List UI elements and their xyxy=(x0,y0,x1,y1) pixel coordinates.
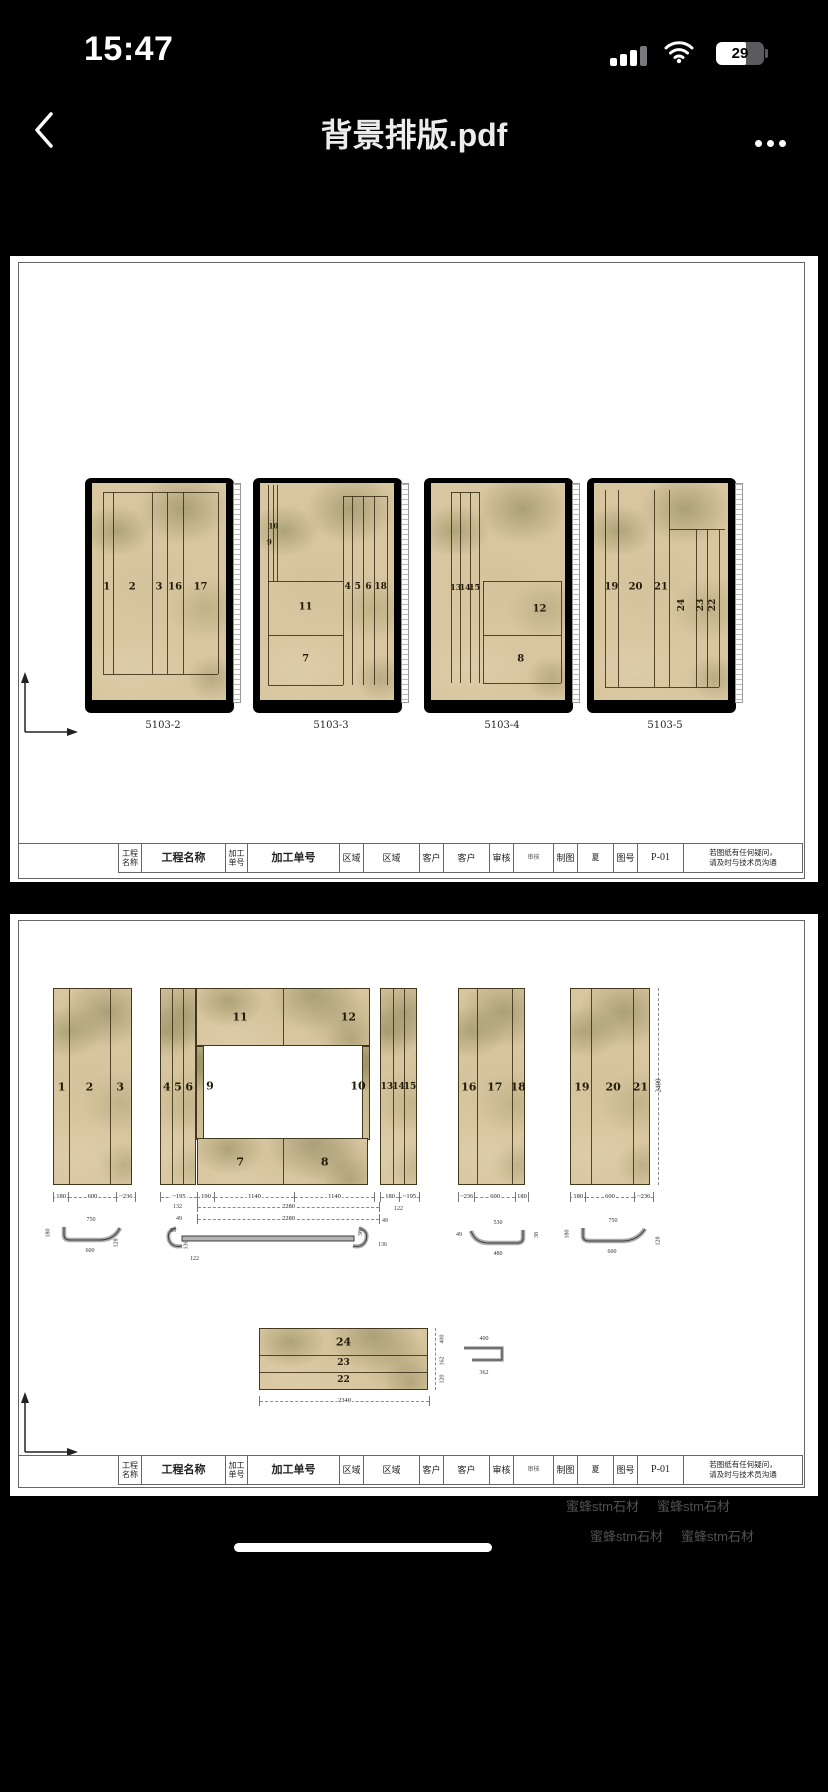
slab-ruler xyxy=(572,483,580,703)
dims-gC: 180 ~195 xyxy=(380,1192,417,1202)
watermark: 蜜蜂stm石材 蜜蜂stm石材 xyxy=(566,1496,730,1515)
tb-label: 工程名称 xyxy=(119,1456,141,1484)
edge-profile-small xyxy=(458,1344,510,1366)
slab-image: 19 20 21 24 23 22 xyxy=(594,483,728,700)
tb-value: 夏 xyxy=(577,1456,613,1484)
slab-ruler xyxy=(401,483,409,703)
piece-label: 21 xyxy=(633,1080,648,1093)
strips-131415: 13 14 15 xyxy=(380,988,417,1185)
dims-gE: 180 600 ~236 xyxy=(570,1192,650,1202)
title-block: 工程名称 工程名称 加工单号 加工单号 区域 区域 客户 客户 审核 审核 制图… xyxy=(118,843,803,873)
piece-label: 19 xyxy=(604,582,618,593)
tb-label: 加工单号 xyxy=(225,844,247,872)
phone-screen: 15:47 29 背景排版.pdf 1 xyxy=(0,0,828,1792)
back-icon[interactable] xyxy=(30,110,56,150)
dim: 132 xyxy=(173,1204,182,1210)
piece-label: 12 xyxy=(533,603,547,614)
slab-caption: 5103-4 xyxy=(424,720,580,731)
piece-label: 9 xyxy=(267,537,272,546)
piece-label: 7 xyxy=(236,1155,244,1168)
height-dim: 2400 xyxy=(656,1079,663,1093)
panel-group-123: 1 2 3 xyxy=(53,988,132,1185)
slab-image: 10 9 11 7 4 5 6 18 xyxy=(260,483,394,700)
piece-label: 24 xyxy=(336,1335,351,1348)
home-indicator[interactable] xyxy=(234,1543,492,1552)
tb-label: 图号 xyxy=(613,844,637,872)
tb-value: 工程名称 xyxy=(141,1456,225,1484)
profile-dim: 49 xyxy=(456,1232,462,1238)
strip-10 xyxy=(362,1046,370,1140)
piece-label: 1 xyxy=(103,582,110,593)
profile-dim: 180 xyxy=(46,1229,52,1238)
piece-label: 12 xyxy=(341,1011,356,1024)
piece-label: 10 xyxy=(269,522,279,531)
edge-profile xyxy=(575,1225,651,1247)
piece-label: 18 xyxy=(374,582,387,592)
document-title: 背景排版.pdf xyxy=(120,110,708,156)
slab-caption: 5103-3 xyxy=(253,720,409,731)
battery-icon: 29 xyxy=(716,42,764,65)
dim: 400 xyxy=(440,1335,446,1344)
profile-dim: 362 xyxy=(458,1370,510,1376)
tb-value: 区域 xyxy=(363,1456,419,1484)
panel-group-161718: 16 17 18 xyxy=(458,988,525,1185)
edge-profile xyxy=(465,1227,531,1249)
piece-label: 23 xyxy=(337,1358,350,1368)
piece-label: 11 xyxy=(232,1011,247,1024)
piece-label: 19 xyxy=(574,1080,589,1093)
profile-dim: 600 xyxy=(590,1249,634,1255)
piece-label: 22 xyxy=(708,598,718,611)
tb-value: 审核 xyxy=(513,1456,553,1484)
profile-dim: 750 xyxy=(56,1217,126,1223)
piece-label: 18 xyxy=(510,1080,525,1093)
piece-label: 23 xyxy=(696,598,706,611)
profile-dim: 480 xyxy=(480,1251,516,1257)
piece-label: 5 xyxy=(355,582,361,592)
tb-label: 工程名称 xyxy=(119,844,141,872)
tb-label: 加工单号 xyxy=(225,1456,247,1484)
tb-label: 制图 xyxy=(553,1456,577,1484)
tb-value: 加工单号 xyxy=(247,1456,339,1484)
slab-image: 1 2 3 16 17 xyxy=(92,483,226,700)
strip-9 xyxy=(196,1046,204,1140)
slab-5103-3: 10 9 11 7 4 5 6 18 xyxy=(253,478,409,713)
piece-label: 24 xyxy=(677,598,687,611)
watermark: 蜜蜂stm石材 蜜蜂stm石材 xyxy=(590,1526,754,1545)
dims-2280b: 2280 xyxy=(197,1214,378,1224)
tb-value: 审核 xyxy=(513,844,553,872)
tb-label: 审核 xyxy=(489,1456,513,1484)
piece-label: 11 xyxy=(299,601,313,612)
edge-profile-long xyxy=(160,1224,375,1254)
profile-dim: 750 xyxy=(575,1218,651,1224)
piece-label: 22 xyxy=(337,1375,350,1385)
bottom-band-7-8: 7 8 xyxy=(197,1138,368,1185)
piece-label: 17 xyxy=(487,1080,502,1093)
cellular-signal-icon xyxy=(610,44,652,66)
piece-label: 9 xyxy=(206,1080,214,1093)
piece-label: 2 xyxy=(86,1080,94,1093)
piece-label: 20 xyxy=(629,582,643,593)
piece-label: 4 xyxy=(163,1080,171,1093)
slab-5103-5: 19 20 21 24 23 22 xyxy=(587,478,743,713)
profile-dim: 38 xyxy=(358,1230,364,1236)
wifi-icon xyxy=(664,40,694,64)
dim: 162 xyxy=(440,1357,446,1366)
top-band-11-12: 11 12 xyxy=(196,988,370,1046)
tb-label: 客户 xyxy=(419,1456,443,1484)
tb-value: 夏 xyxy=(577,844,613,872)
piece-label: 7 xyxy=(302,653,309,664)
profile-dim: 400 xyxy=(458,1336,510,1342)
profile-dim: 49 xyxy=(382,1218,388,1224)
slab-caption: 5103-5 xyxy=(587,720,743,731)
tb-label: 审核 xyxy=(489,844,513,872)
piece-label: 15 xyxy=(404,1082,417,1092)
profile-dim: 38 xyxy=(534,1232,540,1238)
battery-percent: 29 xyxy=(716,42,764,65)
dim: 122 xyxy=(394,1206,403,1212)
dims-gA: 180 600 ~236 xyxy=(53,1192,132,1202)
piece-label: 15 xyxy=(469,582,480,592)
piece-label: 6 xyxy=(365,582,371,592)
piece-label: 5 xyxy=(174,1080,182,1093)
slab-caption: 5103-2 xyxy=(85,720,241,731)
dim: 49 xyxy=(176,1216,182,1222)
piece-label: 3 xyxy=(156,582,163,593)
axis-origin-icon xyxy=(18,670,82,742)
profile-dim: 180 xyxy=(565,1230,571,1239)
pdf-page-2[interactable]: 1 2 3 4 5 6 11 12 9 10 7 8 13 14 xyxy=(10,914,818,1496)
tb-value: 客户 xyxy=(443,844,489,872)
tb-label: 客户 xyxy=(419,844,443,872)
piece-label: 4 xyxy=(345,582,351,592)
tb-label: 区域 xyxy=(339,1456,363,1484)
piece-label: 1 xyxy=(58,1080,66,1093)
tb-value: 区域 xyxy=(363,844,419,872)
piece-label: 3 xyxy=(116,1080,124,1093)
profile-dim: 128 xyxy=(114,1239,120,1248)
dims-2280a: 2280 xyxy=(197,1202,378,1212)
tb-label: 区域 xyxy=(339,844,363,872)
tb-drawing-no: P-01 xyxy=(637,1456,683,1484)
more-icon[interactable] xyxy=(755,140,786,147)
slab-5103-4: 13 14 15 12 8 xyxy=(424,478,580,713)
dim: 120 xyxy=(440,1375,446,1384)
status-time: 15:47 xyxy=(84,30,173,69)
dims-gD: ~236 600 180 xyxy=(458,1192,525,1202)
tb-value: 客户 xyxy=(443,1456,489,1484)
slab-ruler xyxy=(233,483,241,703)
pdf-page-1[interactable]: 1 2 3 16 17 10 9 11 7 xyxy=(10,256,818,882)
profile-dim: 136 xyxy=(184,1241,190,1250)
title-block: 工程名称 工程名称 加工单号 加工单号 区域 区域 客户 客户 审核 审核 制图… xyxy=(118,1455,803,1485)
profile-dim: 122 xyxy=(190,1256,199,1262)
profile-dim: 530 xyxy=(465,1220,531,1226)
tb-label: 制图 xyxy=(553,844,577,872)
dims-gB: ~195 190 1140 1140 xyxy=(160,1192,370,1202)
piece-label: 21 xyxy=(654,582,668,593)
tb-label: 图号 xyxy=(613,1456,637,1484)
profile-dim: 128 xyxy=(656,1237,662,1246)
piece-label: 16 xyxy=(168,582,182,593)
dims-skirting: 2340 xyxy=(259,1396,428,1406)
piece-label: 17 xyxy=(194,582,208,593)
piece-label: 2 xyxy=(129,582,136,593)
strips-456: 4 5 6 xyxy=(160,988,196,1185)
profile-dim: 136 xyxy=(378,1242,387,1248)
tb-value: 加工单号 xyxy=(247,844,339,872)
tb-value: 工程名称 xyxy=(141,844,225,872)
piece-label: 20 xyxy=(605,1080,620,1093)
piece-label: 8 xyxy=(321,1155,329,1168)
tb-note: 若图纸有任何疑问， 请及时与技术员沟通 xyxy=(683,844,802,872)
tb-drawing-no: P-01 xyxy=(637,844,683,872)
profile-dim: 600 xyxy=(70,1248,110,1254)
skirting-piece: 24 23 22 xyxy=(259,1328,428,1390)
slab-image: 13 14 15 12 8 xyxy=(431,483,565,700)
slab-ruler xyxy=(735,483,743,703)
piece-label: 10 xyxy=(350,1080,365,1093)
piece-label: 8 xyxy=(517,653,524,664)
piece-label: 16 xyxy=(461,1080,476,1093)
panel-group-192021: 19 20 21 xyxy=(570,988,650,1185)
tb-note: 若图纸有任何疑问， 请及时与技术员沟通 xyxy=(683,1456,802,1484)
axis-origin-icon xyxy=(18,1390,82,1462)
profile-dim: 55 xyxy=(170,1228,176,1234)
slab-5103-2: 1 2 3 16 17 xyxy=(85,478,241,713)
piece-label: 6 xyxy=(185,1080,193,1093)
